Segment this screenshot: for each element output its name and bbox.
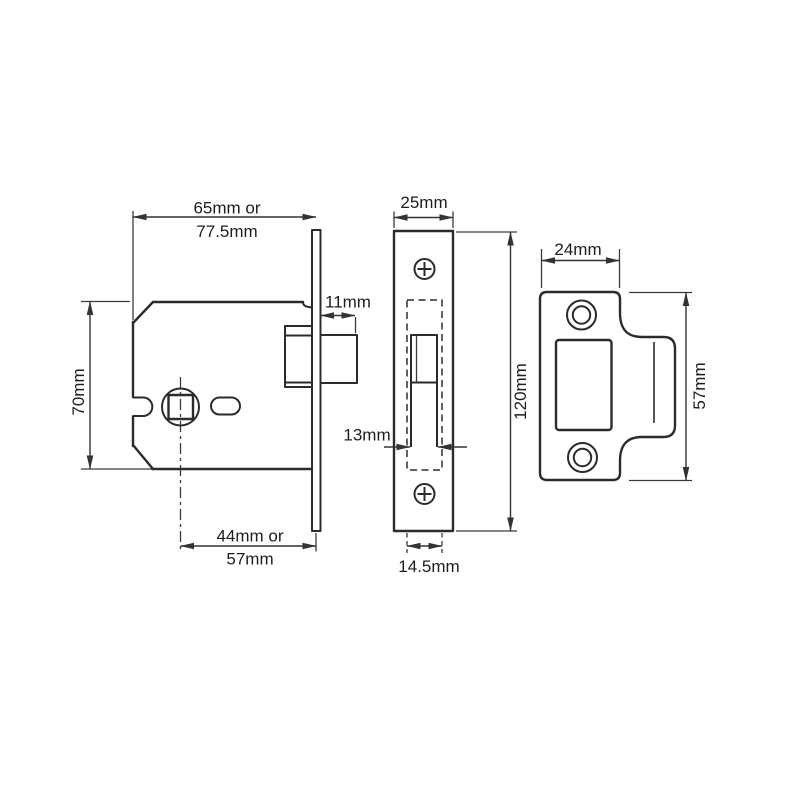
strike-plate-front-view: 24mm 57mm <box>540 240 709 481</box>
dimension-strike-width: 24mm <box>542 240 620 288</box>
dimension-latch-width: 13mm <box>343 426 467 448</box>
dimension-label-case-depth-2: 77.5mm <box>196 222 257 241</box>
dimension-label-case-width: 14.5mm <box>398 557 459 576</box>
bottom-screw-hole <box>568 443 597 472</box>
dimension-label-faceplate-width: 25mm <box>400 193 447 212</box>
dimension-bolt-projection: 11mm <box>321 293 371 334</box>
dimension-label-bolt-projection: 11mm <box>325 293 371 312</box>
screw-cross-icon <box>418 262 432 276</box>
faceplate-front-view: 25mm 120mm 13mm 14.5mm <box>343 193 530 576</box>
lock-case-chamfer-bottom-left <box>133 445 153 469</box>
strike-latch-opening <box>556 340 612 430</box>
dimension-label-backset-2: 57mm <box>226 550 273 569</box>
technical-drawing-canvas: 65mm or 77.5mm 70mm 11mm 44mm or 57mm <box>0 0 800 800</box>
dimension-label-strike-width: 24mm <box>554 240 601 259</box>
dimension-strike-height: 57mm <box>629 293 709 481</box>
dimension-label-case-depth-1: 65mm or <box>193 199 260 218</box>
screw-hole-outer <box>568 443 597 472</box>
fixing-oval-hole <box>211 398 240 415</box>
dimension-backset: 44mm or 57mm <box>181 527 317 569</box>
screw-hole-inner <box>574 449 591 466</box>
latch-bolt-head <box>321 335 358 383</box>
dimension-faceplate-height: 120mm <box>456 232 530 531</box>
lock-case-side-notch <box>133 398 152 417</box>
faceplate-edge-on <box>312 230 321 531</box>
dimension-label-latch-width: 13mm <box>343 426 390 445</box>
dimension-case-height: 70mm <box>69 302 153 470</box>
top-screw-hole <box>567 301 596 330</box>
dimension-label-backset-1: 44mm or <box>216 527 283 546</box>
latch-bolt-front <box>411 335 437 383</box>
bottom-screw <box>415 484 435 504</box>
dimension-case-width: 14.5mm <box>398 533 459 576</box>
screw-hole-outer <box>567 301 596 330</box>
dimension-label-case-height: 70mm <box>69 368 88 415</box>
lock-case-top-notch <box>303 302 312 307</box>
dimension-faceplate-width: 25mm <box>394 193 453 228</box>
lock-case-chamfer-top-left <box>133 302 153 323</box>
dimension-label-strike-height: 57mm <box>690 362 709 409</box>
screw-cross-icon <box>418 487 432 501</box>
top-screw <box>415 259 435 279</box>
screw-hole-inner <box>573 306 590 323</box>
latch-technical-drawing: 65mm or 77.5mm 70mm 11mm 44mm or 57mm <box>0 0 800 800</box>
dimension-label-faceplate-height: 120mm <box>511 363 530 420</box>
lock-body-side-view: 65mm or 77.5mm 70mm 11mm 44mm or 57mm <box>69 199 371 569</box>
